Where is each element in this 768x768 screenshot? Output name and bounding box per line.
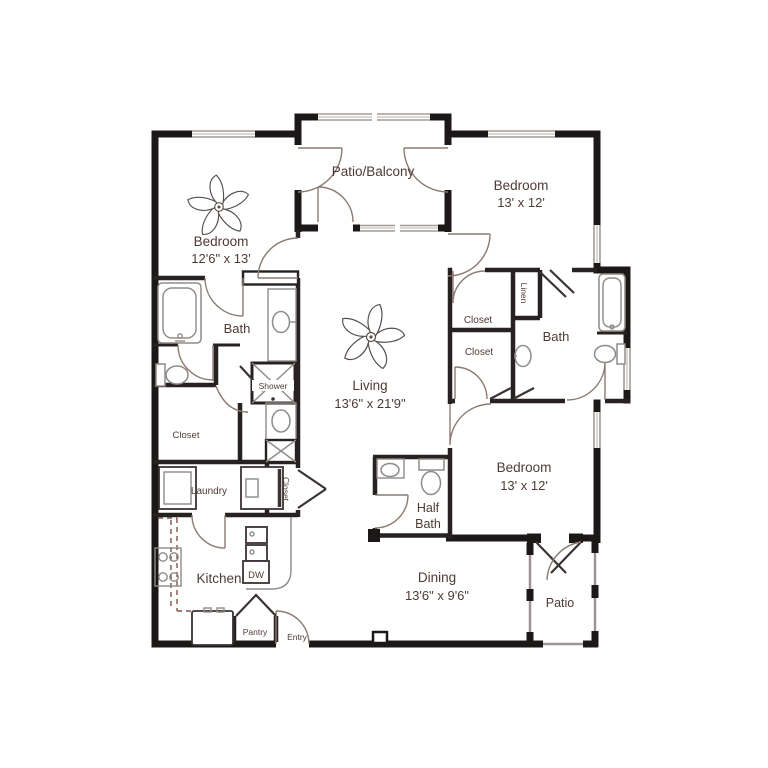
closet-right-upper-door	[453, 271, 485, 303]
dining-dims: 13'6" x 9'6"	[405, 588, 469, 603]
floor-plan-drawing: Patio/Balcony Bedroom 13' x 12' Bedroom …	[0, 0, 768, 768]
bedroom3-label: Bedroom	[497, 460, 552, 475]
bath-right-label: Bath	[543, 329, 570, 344]
half-bath-sink	[377, 459, 404, 478]
ceiling-fan-living	[340, 302, 406, 368]
bedroom3-door	[450, 404, 491, 445]
window-tick	[395, 224, 400, 233]
bath-left-label: Bath	[224, 321, 251, 336]
laundry-door	[192, 515, 225, 548]
sink-right-bath	[514, 346, 531, 367]
bath-left-door	[205, 278, 243, 316]
bedroom2-label: Bedroom	[494, 178, 549, 193]
bath-right-door	[567, 362, 605, 400]
living-to-balcony-door	[318, 187, 353, 222]
closet-right-upper-label: Closet	[464, 315, 493, 326]
bathtub-right	[599, 274, 625, 331]
hall-cabinet-x	[266, 440, 296, 462]
laundry-label: Laundry	[191, 486, 227, 497]
bedroom2-dims: 13' x 12'	[497, 195, 545, 210]
pantry-door	[236, 595, 276, 616]
pantry-label: Pantry	[243, 627, 268, 637]
bedroom1-label: Bedroom	[194, 234, 249, 249]
hall-closet-door	[298, 470, 326, 508]
patio-label: Patio	[546, 596, 575, 610]
patio-balcony-label: Patio/Balcony	[332, 164, 415, 179]
half-bath-label-line2: Bath	[415, 517, 441, 531]
bathtub-left	[158, 283, 201, 343]
kitchen-sink	[246, 527, 267, 561]
entry-label: Entry	[287, 632, 308, 642]
kitchen-label: Kitchen	[196, 571, 241, 586]
closet-right-lower-label: Closet	[465, 347, 494, 358]
toilet-left	[156, 364, 188, 386]
refrigerator	[192, 608, 233, 645]
hall-vanity-sink	[266, 403, 296, 440]
closet-left-label: Closet	[173, 430, 200, 441]
ceiling-fan-bedroom1	[186, 174, 248, 237]
living-label: Living	[352, 378, 387, 393]
toilet-right	[595, 344, 626, 364]
dryer	[241, 467, 283, 509]
half-bath-toilet	[419, 459, 444, 495]
shower-label: Shower	[259, 381, 288, 391]
closet-right-lower-door	[455, 367, 487, 399]
vanity-sink-left-bath	[268, 289, 296, 361]
living-dims: 13'6" x 21'9"	[334, 396, 406, 411]
window-tick	[372, 112, 377, 122]
wall-outlet-box	[373, 632, 387, 643]
closet-hall-label: Closet	[281, 477, 291, 502]
dishwasher-label: DW	[248, 570, 264, 581]
bath-right-angled-door	[540, 270, 574, 297]
dining-label: Dining	[418, 570, 456, 585]
patio-french-doors	[536, 542, 581, 580]
door-post	[527, 534, 541, 544]
bedroom3-dims: 13' x 12'	[500, 478, 548, 493]
floor-plan-canvas: Patio/Balcony Bedroom 13' x 12' Bedroom …	[0, 0, 768, 768]
bedroom2-door	[448, 234, 490, 276]
bedroom1-dims: 12'6" x 13'	[191, 251, 250, 266]
half-bath-label-line1: Half	[417, 501, 440, 515]
linen-label: Linen	[519, 283, 529, 304]
half-bath-door	[375, 495, 408, 528]
